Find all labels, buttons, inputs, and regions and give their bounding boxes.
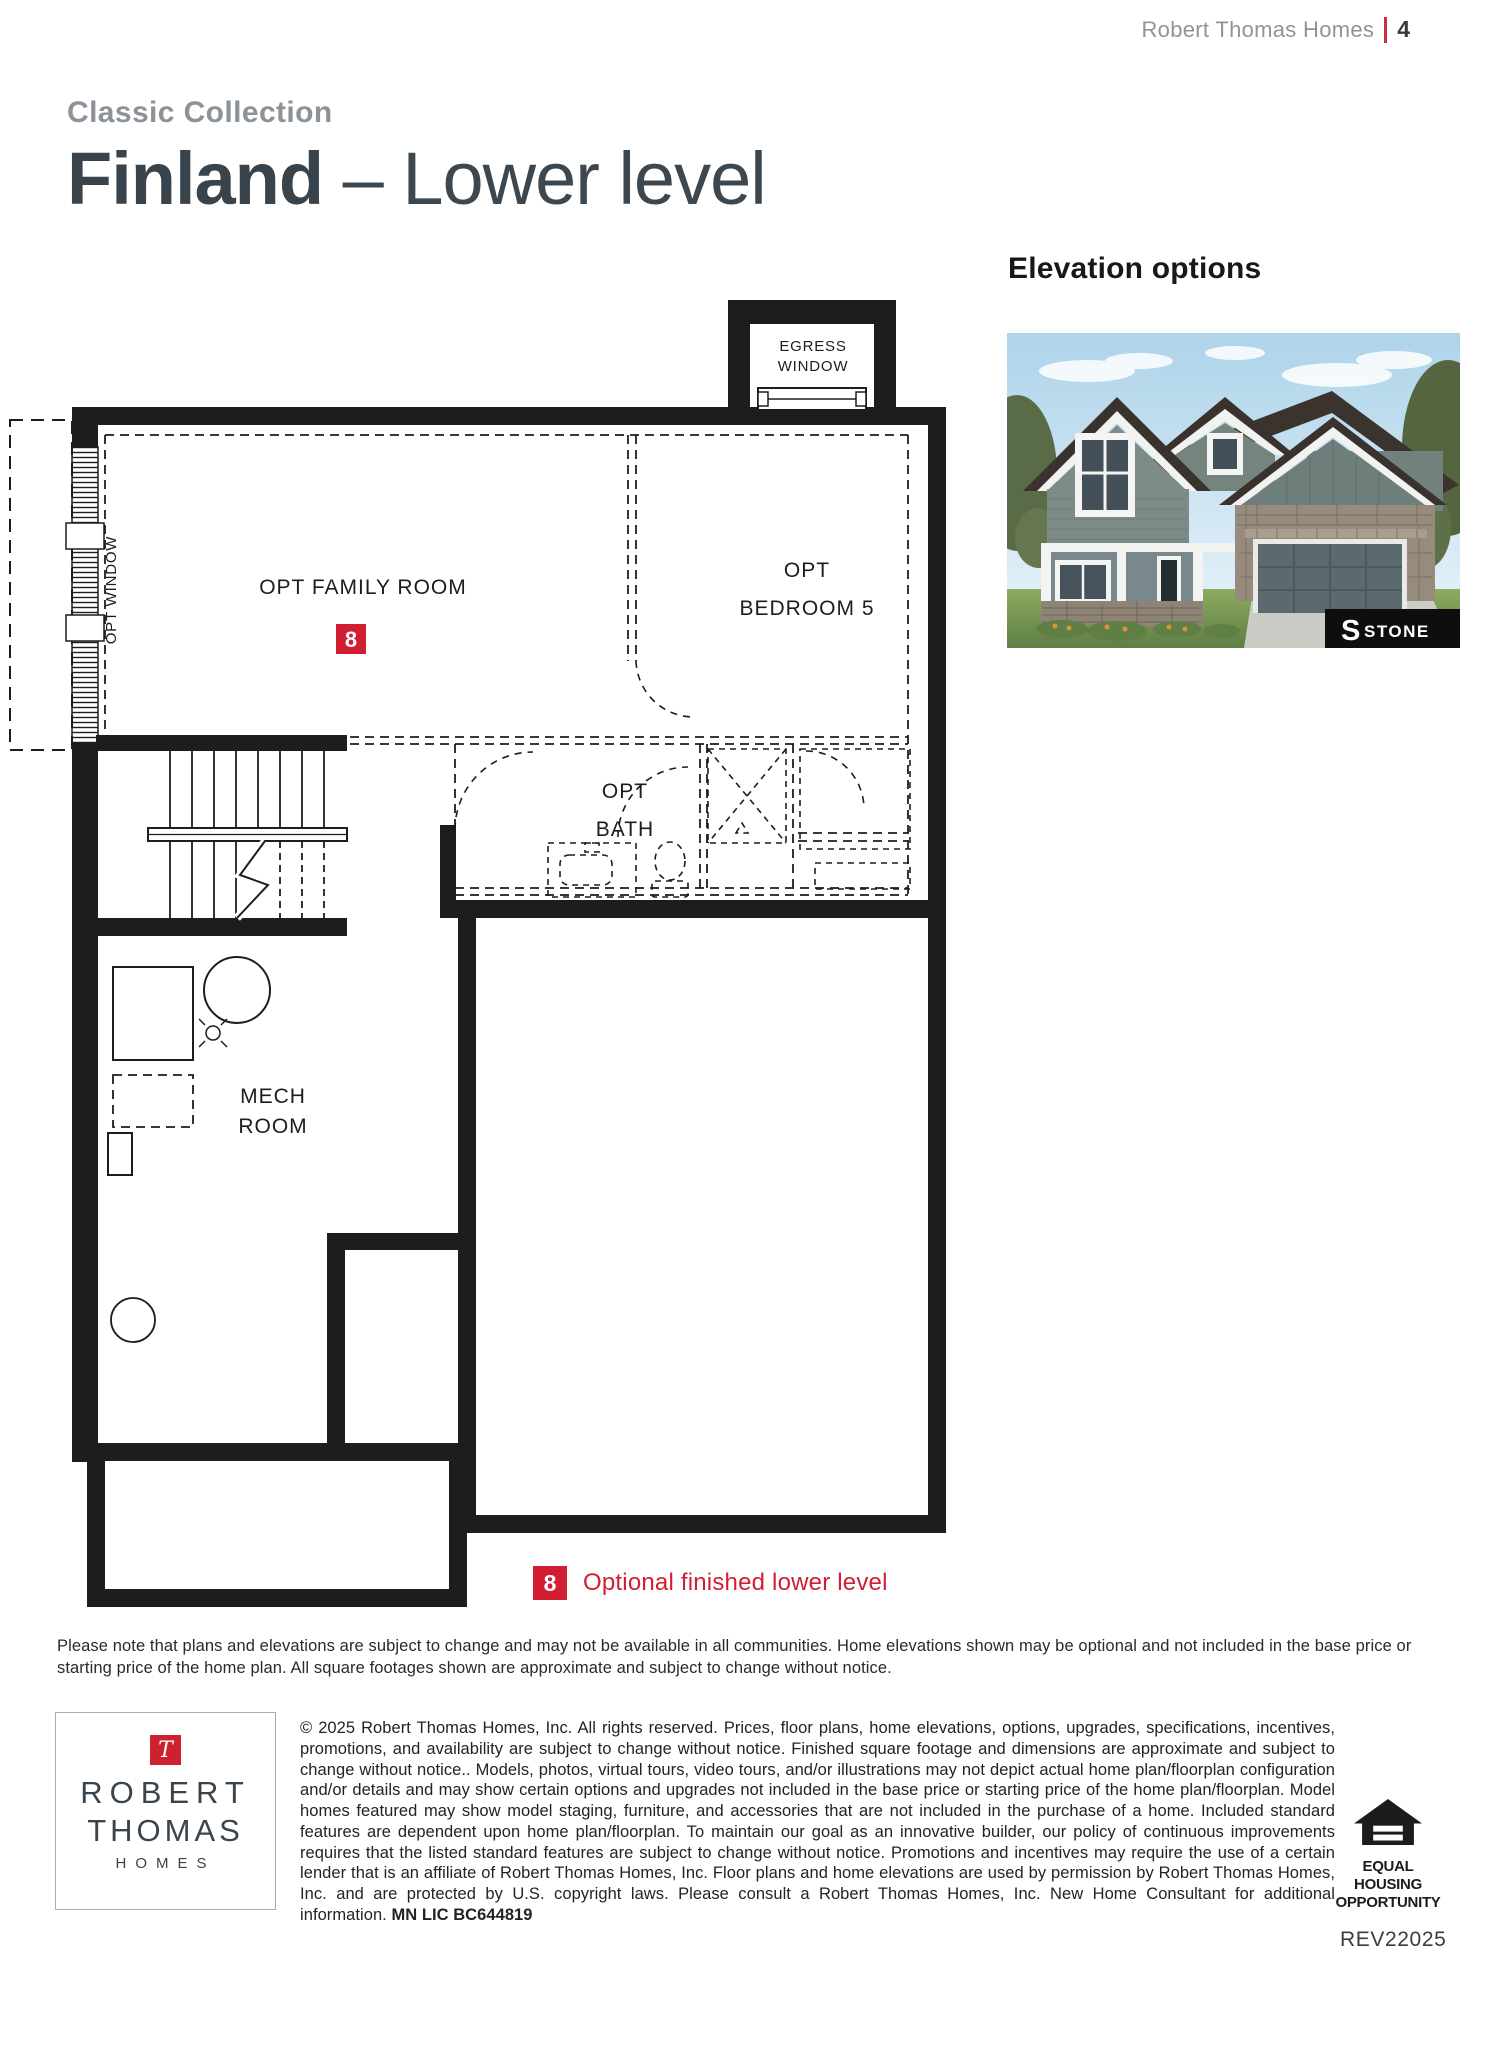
walls	[72, 300, 946, 1607]
header-divider	[1384, 17, 1387, 43]
elevation-badge-letter: S	[1341, 615, 1360, 647]
disclaimer-text: Please note that plans and elevations ar…	[57, 1636, 1449, 1680]
elevation-badge-text: STONE	[1364, 622, 1430, 641]
title-separator: –	[343, 137, 383, 220]
bumpout-interior	[105, 1461, 449, 1589]
mech-fixtures	[108, 957, 270, 1342]
eho-line-1: EQUAL HOUSING	[1332, 1858, 1444, 1894]
collection-label: Classic Collection	[67, 96, 766, 130]
license-number: MN LIC BC644819	[391, 1906, 532, 1924]
egress-label-2: WINDOW	[778, 358, 849, 375]
page-header: Robert Thomas Homes 4	[1141, 16, 1410, 43]
logo-line-robert: ROBERT	[80, 1775, 251, 1811]
title-block: Classic Collection Finland – Lower level	[67, 96, 766, 221]
opt-bedroom-label-1: OPT	[784, 559, 830, 582]
floor-plan: EGRESS WINDOW OPT WINDOW OPT FAMILY ROOM…	[0, 285, 960, 1630]
opt-family-room-label: OPT FAMILY ROOM	[259, 576, 467, 599]
builder-logo: T ROBERT THOMAS HOMES	[55, 1712, 276, 1910]
equal-housing-house-icon	[1351, 1793, 1425, 1851]
option-badge-number: 8	[345, 627, 357, 652]
egress-window-symbol	[758, 388, 866, 410]
header-brand: Robert Thomas Homes	[1141, 17, 1374, 43]
elevation-photo: S STONE	[1007, 333, 1460, 648]
elevation-options-heading: Elevation options	[1008, 252, 1261, 286]
window-well-outline	[10, 420, 72, 750]
opt-bath-label-1: OPT	[602, 780, 648, 803]
stairs	[148, 751, 347, 918]
elevation-badge: S STONE	[1325, 609, 1460, 648]
option-badge-8: 8	[336, 624, 366, 654]
copyright-body: © 2025 Robert Thomas Homes, Inc. All rig…	[300, 1719, 1335, 1924]
logo-line-homes: HOMES	[115, 1855, 215, 1872]
opt-window-symbol	[66, 447, 104, 743]
logo-monogram: T	[150, 1735, 181, 1765]
opt-window-label: OPT WINDOW	[103, 536, 120, 645]
plan-legend: 8 Optional finished lower level	[533, 1566, 888, 1600]
plan-level: Lower level	[402, 137, 765, 220]
copyright-text: © 2025 Robert Thomas Homes, Inc. All rig…	[300, 1718, 1335, 1926]
egress-label-1: EGRESS	[779, 338, 846, 355]
header-page-number: 4	[1397, 16, 1410, 43]
plan-name: Finland	[67, 137, 323, 220]
eho-line-2: OPPORTUNITY	[1332, 1894, 1444, 1912]
page-title: Finland – Lower level	[67, 136, 766, 221]
opt-bath-label-2: BATH	[596, 818, 654, 841]
revision-code: REV22025	[1340, 1928, 1446, 1952]
equal-housing-logo: EQUAL HOUSING OPPORTUNITY	[1332, 1793, 1444, 1912]
opt-bedroom-label-2: BEDROOM 5	[739, 597, 874, 620]
optional-walls	[105, 435, 908, 895]
mech-room-label-1: MECH	[240, 1085, 306, 1108]
logo-line-thomas: THOMAS	[87, 1813, 244, 1849]
mech-room-label-2: ROOM	[238, 1115, 307, 1138]
legend-badge: 8	[533, 1566, 567, 1600]
brochure-page: Robert Thomas Homes 4 Classic Collection…	[0, 0, 1500, 2058]
legend-label: Optional finished lower level	[583, 1569, 888, 1597]
